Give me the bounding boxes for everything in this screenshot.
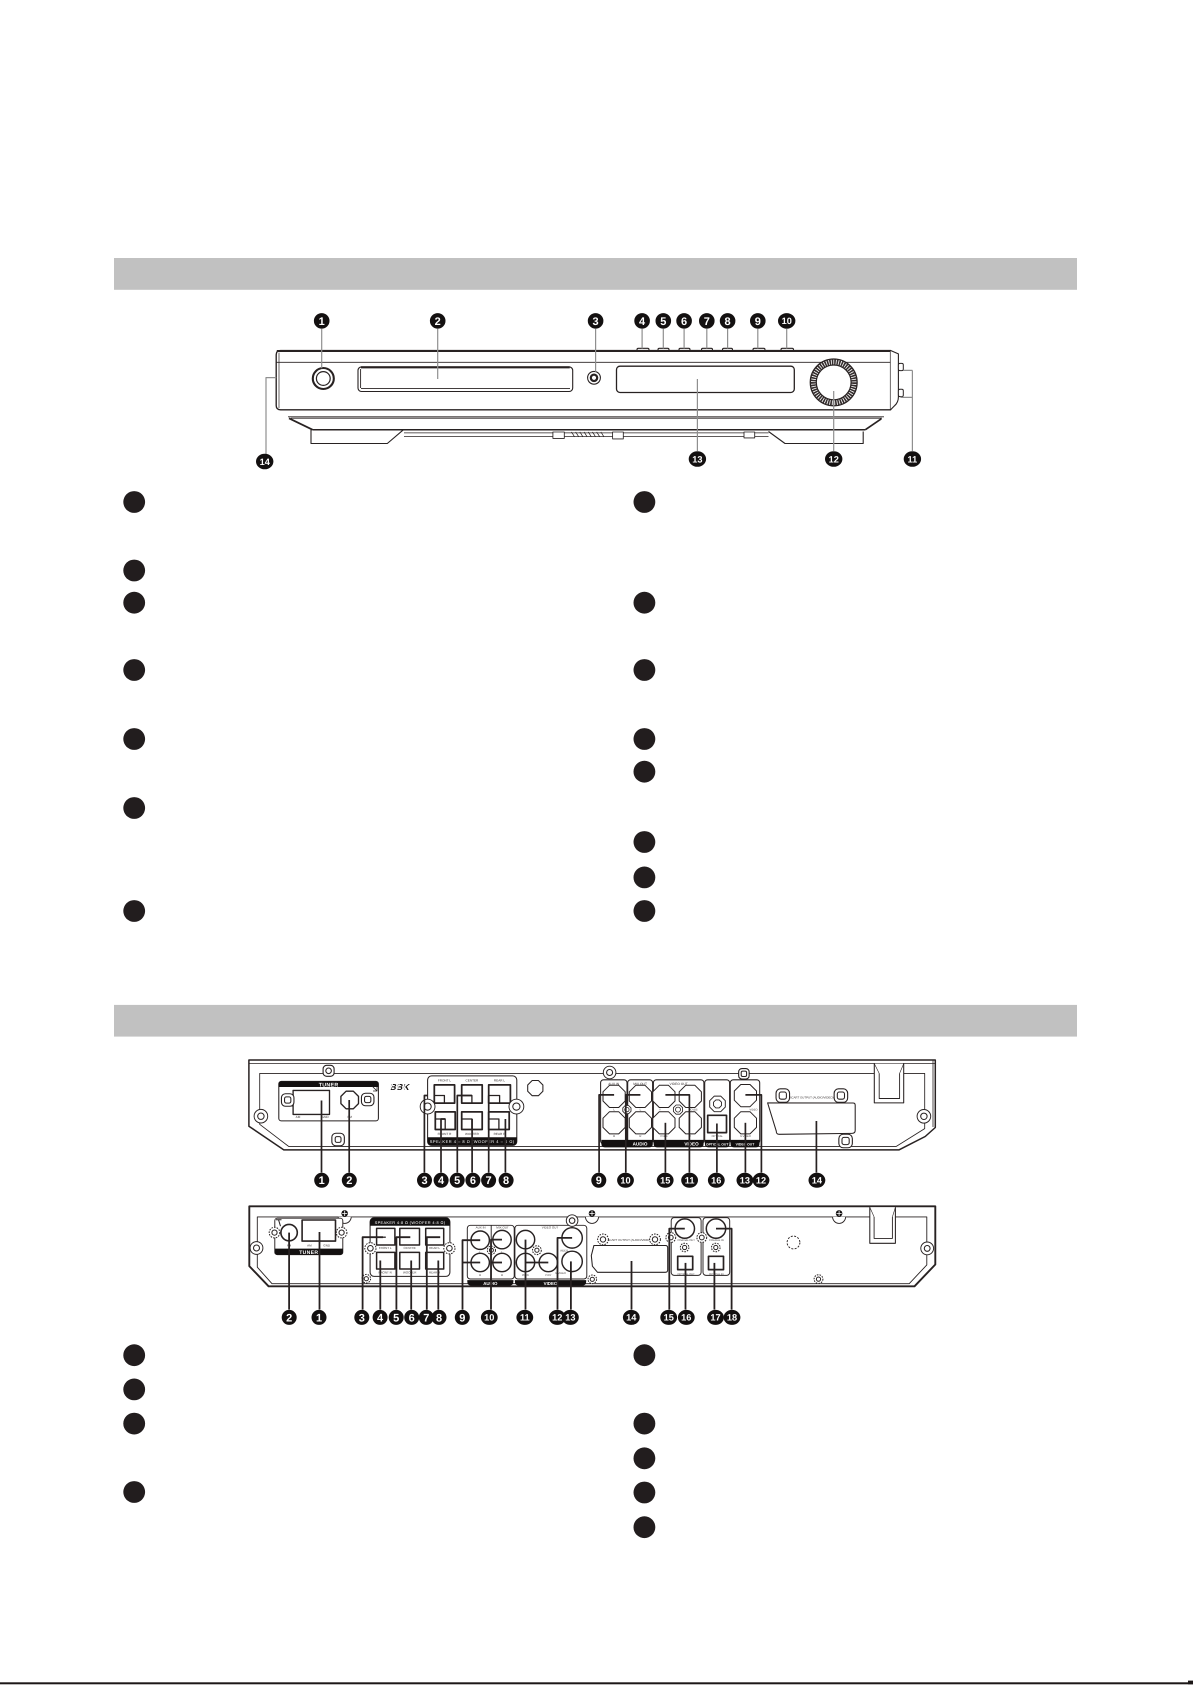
svg-text:AUDIO: AUDIO	[633, 1142, 648, 1147]
svg-text:8: 8	[503, 1175, 509, 1187]
svg-text:16: 16	[711, 1176, 721, 1186]
svg-text:AM: AM	[296, 1115, 301, 1119]
svg-text:7: 7	[423, 1312, 429, 1324]
svg-text:2: 2	[435, 316, 441, 328]
svg-text:TUNER: TUNER	[319, 1083, 339, 1089]
svg-text:3: 3	[421, 1175, 427, 1187]
svg-text:COAXIAL IN: COAXIAL IN	[709, 1239, 724, 1242]
svg-text:FRONT R: FRONT R	[438, 1132, 452, 1136]
svg-text:16: 16	[681, 1313, 691, 1323]
svg-text:VIDEO: VIDEO	[544, 1281, 558, 1286]
svg-text:1: 1	[319, 1175, 325, 1187]
svg-text:4: 4	[377, 1312, 384, 1324]
svg-text:3: 3	[359, 1312, 365, 1324]
svg-text:VIDEO: VIDEO	[749, 1109, 757, 1112]
svg-text:CENTRE: CENTRE	[404, 1246, 416, 1250]
svg-text:2: 2	[286, 1312, 292, 1324]
svg-text:12: 12	[829, 454, 839, 464]
svg-text:FRONT L: FRONT L	[438, 1078, 451, 1082]
svg-text:Pr/Cr: Pr/Cr	[545, 1274, 551, 1277]
svg-text:1: 1	[319, 316, 325, 328]
svg-text:CVBS: CVBS	[660, 1135, 667, 1138]
svg-text:12: 12	[756, 1176, 766, 1186]
svg-text:SCART OUTPUT (AUDIO/VIDEO): SCART OUTPUT (AUDIO/VIDEO)	[789, 1095, 833, 1099]
svg-text:9: 9	[596, 1175, 602, 1187]
svg-text:9: 9	[459, 1312, 465, 1324]
svg-text:GND: GND	[322, 1115, 330, 1119]
svg-text:14: 14	[626, 1313, 637, 1323]
svg-text:8: 8	[436, 1312, 442, 1324]
svg-text:8: 8	[725, 316, 731, 328]
svg-text:CENTER: CENTER	[466, 1078, 479, 1082]
svg-text:17: 17	[710, 1313, 720, 1323]
svg-text:10: 10	[484, 1313, 494, 1323]
svg-text:9: 9	[755, 316, 761, 328]
svg-text:12: 12	[552, 1313, 562, 1323]
svg-text:7: 7	[486, 1175, 492, 1187]
svg-text:7: 7	[704, 316, 710, 328]
svg-text:WOOFER: WOOFER	[403, 1270, 417, 1274]
svg-text:R: R	[479, 1273, 481, 1277]
svg-text:15: 15	[664, 1313, 674, 1323]
svg-text:R: R	[613, 1134, 615, 1138]
svg-text:VIDEO OUT: VIDEO OUT	[670, 1082, 688, 1086]
svg-text:MIX OUT: MIX OUT	[496, 1226, 509, 1230]
svg-text:11: 11	[908, 454, 918, 464]
svg-text:TUNER: TUNER	[299, 1250, 318, 1256]
svg-text:1: 1	[316, 1312, 322, 1324]
svg-text:CVBS: CVBS	[690, 1109, 697, 1112]
svg-text:13: 13	[740, 1176, 750, 1186]
svg-text:6: 6	[409, 1312, 415, 1324]
svg-text:REAR R: REAR R	[494, 1132, 506, 1136]
svg-text:AM: AM	[307, 1243, 312, 1247]
svg-text:15: 15	[660, 1176, 670, 1186]
svg-text:R: R	[639, 1134, 641, 1138]
svg-text:5: 5	[660, 316, 666, 328]
svg-text:10: 10	[782, 316, 792, 326]
svg-text:13: 13	[692, 454, 702, 464]
svg-text:VIDEO OUT: VIDEO OUT	[542, 1226, 559, 1230]
svg-text:Y: Y	[659, 1109, 661, 1112]
svg-text:5: 5	[454, 1175, 460, 1187]
svg-text:SCART OUTPUT (AUDIO/VIDEO): SCART OUTPUT (AUDIO/VIDEO)	[607, 1238, 651, 1242]
svg-text:4: 4	[438, 1175, 445, 1187]
svg-text:SPEAKER 4-8 Ω (WOOFER 4-8 Ω): SPEAKER 4-8 Ω (WOOFER 4-8 Ω)	[375, 1220, 446, 1225]
svg-text:VIDEO: VIDEO	[684, 1142, 699, 1147]
svg-text:REAR R: REAR R	[429, 1270, 441, 1274]
svg-text:GND: GND	[323, 1243, 331, 1247]
svg-text:11: 11	[520, 1313, 530, 1323]
svg-text:18: 18	[727, 1313, 737, 1323]
svg-text:10: 10	[620, 1176, 630, 1186]
svg-text:OPTICAL IN: OPTICAL IN	[709, 1273, 723, 1276]
svg-text:VIDEO: VIDEO	[560, 1249, 568, 1252]
svg-text:5: 5	[393, 1312, 399, 1324]
svg-text:6: 6	[681, 316, 687, 328]
svg-text:11: 11	[685, 1176, 695, 1186]
svg-text:4: 4	[639, 316, 646, 328]
svg-text:6: 6	[470, 1175, 476, 1187]
svg-text:13: 13	[565, 1313, 575, 1323]
svg-text:R: R	[501, 1273, 503, 1277]
svg-text:REAR L: REAR L	[429, 1246, 440, 1250]
svg-text:AUX IN: AUX IN	[476, 1226, 486, 1230]
svg-text:14: 14	[260, 457, 271, 467]
svg-text:COAXIAL OUT: COAXIAL OUT	[677, 1239, 695, 1242]
svg-text:3: 3	[593, 316, 599, 328]
svg-text:2: 2	[346, 1175, 352, 1187]
svg-text:REAR L: REAR L	[494, 1078, 505, 1082]
svg-text:FRONT L: FRONT L	[379, 1246, 392, 1250]
svg-text:14: 14	[812, 1176, 823, 1186]
